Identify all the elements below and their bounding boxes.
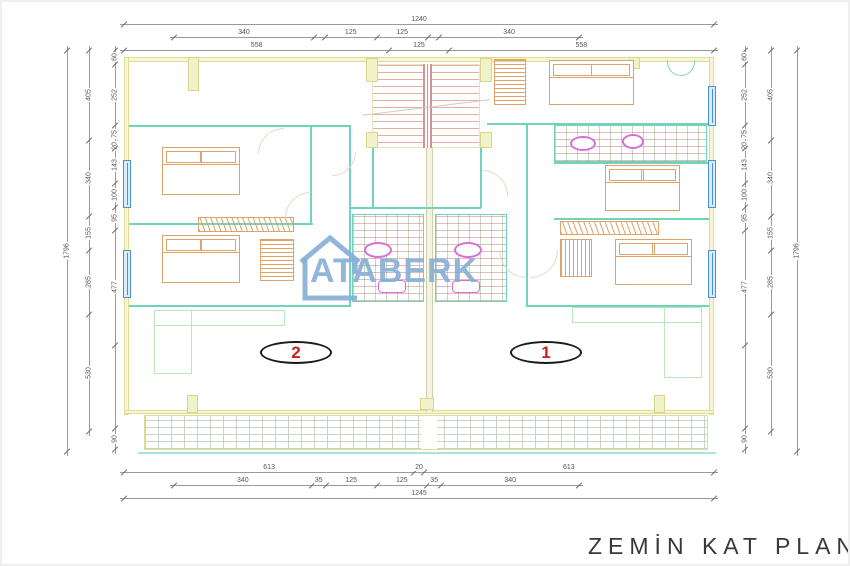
dimension-label: 75 bbox=[112, 129, 119, 139]
dimension-label: 340 bbox=[768, 171, 775, 185]
terrace-walkway bbox=[421, 416, 437, 449]
wall-pier bbox=[187, 395, 198, 413]
dimension-label: 75 bbox=[742, 129, 749, 139]
dimension-segment: 340 bbox=[174, 27, 314, 41]
pillow bbox=[166, 151, 202, 163]
dimension-segment: 285 bbox=[82, 250, 96, 313]
dimension-segment: 252 bbox=[108, 64, 122, 125]
dimension-label: 100 bbox=[112, 188, 119, 202]
dimension-label: 477 bbox=[742, 280, 749, 294]
dimension-tick bbox=[86, 47, 92, 53]
dimension-chain-top-inner: 340125125340 bbox=[174, 27, 579, 41]
entrance-step bbox=[420, 398, 434, 410]
dimension-label: 95 bbox=[112, 213, 119, 223]
dimension-chain-top-total: 1240 bbox=[124, 14, 714, 28]
dimension-chain-bottom-inner: 3403512512535340 bbox=[174, 475, 579, 489]
dimension-segment: 143 bbox=[108, 148, 122, 183]
watermark: ATABERK bbox=[297, 232, 487, 304]
bed-frame-line bbox=[550, 77, 633, 78]
terrace-edge-line bbox=[138, 452, 716, 454]
dimension-tick bbox=[121, 469, 127, 475]
dimension-label: 252 bbox=[112, 88, 119, 102]
wardrobe bbox=[560, 239, 592, 277]
dimension-segment: 1245 bbox=[124, 488, 714, 502]
pillow bbox=[641, 169, 676, 181]
dimension-label: 340 bbox=[236, 477, 250, 484]
unit-1-number: 1 bbox=[541, 343, 550, 363]
wall bbox=[351, 207, 481, 209]
dimension-tick bbox=[768, 47, 774, 53]
dimension-label: 340 bbox=[237, 29, 251, 36]
pillow bbox=[200, 239, 236, 251]
outer-wall-left bbox=[124, 57, 129, 415]
dimension-segment: 155 bbox=[764, 216, 778, 251]
dimension-segment: 530 bbox=[764, 314, 778, 432]
dimension-chain-right-total: 1796 bbox=[790, 50, 804, 452]
dimension-segment: 95 bbox=[108, 207, 122, 230]
dimension-segment: 613 bbox=[424, 462, 714, 476]
dimension-segment: 340 bbox=[764, 140, 778, 216]
column bbox=[366, 58, 378, 82]
dimension-segment: 125 bbox=[325, 27, 376, 41]
dimension-segment bbox=[108, 345, 122, 428]
dimension-segment: 155 bbox=[82, 216, 96, 251]
unit-2-number: 2 bbox=[291, 343, 300, 363]
toilet bbox=[570, 136, 596, 151]
pillow bbox=[591, 64, 630, 76]
wall bbox=[526, 123, 528, 307]
dimension-segment: 340 bbox=[441, 475, 579, 489]
wall bbox=[554, 162, 709, 164]
bed bbox=[162, 235, 240, 283]
dimension-label: 155 bbox=[86, 226, 93, 240]
dimension-segment: 405 bbox=[82, 50, 96, 140]
door-arc bbox=[530, 250, 558, 278]
dimension-segment: 477 bbox=[108, 230, 122, 345]
dimension-segment: 143 bbox=[738, 148, 752, 183]
dimension-label: 143 bbox=[112, 159, 119, 173]
dimension-segment: 1240 bbox=[124, 14, 714, 28]
dimension-label: 1245 bbox=[410, 490, 428, 497]
wall bbox=[129, 125, 351, 127]
dimension-segment: 125 bbox=[389, 40, 448, 54]
pillow bbox=[166, 239, 202, 251]
dimension-label: 35 bbox=[314, 477, 324, 484]
dimension-segment: 340 bbox=[174, 475, 312, 489]
dimension-segment: 340 bbox=[82, 140, 96, 216]
pillow bbox=[652, 243, 688, 255]
door-arc bbox=[258, 128, 284, 154]
dimension-label: 95 bbox=[742, 213, 749, 223]
basin-niche bbox=[667, 60, 695, 76]
window bbox=[708, 86, 716, 126]
dimension-chain-left-total: 1796 bbox=[60, 50, 74, 452]
dimension-chain-top-wall: 558125558 bbox=[124, 40, 714, 54]
dimension-tick bbox=[121, 495, 127, 501]
dimension-segment: 530 bbox=[82, 314, 96, 432]
dimension-segment: 1796 bbox=[790, 50, 804, 452]
dimension-segment: 100 bbox=[738, 183, 752, 207]
dimension-chain-left-inner: 6025275201431009547790 bbox=[108, 50, 122, 450]
dimension-segment: 477 bbox=[738, 230, 752, 345]
dimension-segment: 90 bbox=[738, 428, 752, 450]
bed-frame-line bbox=[163, 164, 239, 165]
dimension-label: 90 bbox=[742, 434, 749, 444]
dimension-label: 125 bbox=[344, 477, 358, 484]
window bbox=[708, 250, 716, 298]
living-room-edge bbox=[664, 307, 702, 378]
dimension-label: 155 bbox=[768, 226, 775, 240]
dimension-segment: 558 bbox=[449, 40, 714, 54]
dimension-tick bbox=[794, 47, 800, 53]
dimension-label: 558 bbox=[575, 42, 589, 49]
wardrobe bbox=[198, 217, 294, 232]
dimension-segment: 285 bbox=[764, 250, 778, 313]
dimension-chain-right-inner: 6025275201431009547790 bbox=[738, 50, 752, 450]
unit-1-label: 1 bbox=[510, 341, 582, 364]
bed bbox=[549, 60, 634, 105]
dimension-label: 405 bbox=[86, 88, 93, 102]
watermark-text: ATABERK bbox=[310, 252, 478, 291]
dimension-label: 143 bbox=[742, 159, 749, 173]
wall-pier bbox=[654, 395, 665, 413]
dimension-label: 1240 bbox=[410, 16, 428, 23]
dimension-label: 125 bbox=[395, 477, 409, 484]
dimension-label: 405 bbox=[768, 88, 775, 102]
dimension-chain-left-mid: 405340155285530 bbox=[82, 50, 96, 432]
dimension-segment: 125 bbox=[326, 475, 377, 489]
bed bbox=[615, 239, 692, 285]
dimension-label: 340 bbox=[86, 171, 93, 185]
outer-wall-bottom bbox=[124, 410, 714, 414]
dimension-label: 613 bbox=[562, 464, 576, 471]
dimension-label: 530 bbox=[86, 366, 93, 380]
dimension-label: 285 bbox=[768, 275, 775, 289]
dimension-tick bbox=[121, 21, 127, 27]
dimension-label: 90 bbox=[112, 434, 119, 444]
pillow bbox=[619, 243, 655, 255]
dimension-tick bbox=[64, 47, 70, 53]
wall-pier bbox=[188, 57, 199, 91]
dimension-segment: 340 bbox=[439, 27, 579, 41]
bed-frame-line bbox=[606, 182, 679, 183]
dimension-segment: 558 bbox=[124, 40, 389, 54]
dimension-chain-bottom-wall: 61320613 bbox=[124, 462, 714, 476]
floor-plan-page: 2 1 ATABERK 1240340125125340558125558613… bbox=[0, 0, 850, 566]
column bbox=[480, 58, 492, 82]
dimension-label: 20 bbox=[414, 464, 424, 471]
column bbox=[480, 132, 492, 148]
wardrobe bbox=[260, 239, 294, 281]
dimension-label: 35 bbox=[429, 477, 439, 484]
dimension-label: 530 bbox=[768, 366, 775, 380]
living-room-edge bbox=[154, 310, 192, 374]
column bbox=[366, 132, 378, 148]
dimension-segment: 95 bbox=[738, 207, 752, 230]
dimension-label: 558 bbox=[250, 42, 264, 49]
pillow bbox=[553, 64, 592, 76]
dimension-label: 613 bbox=[262, 464, 276, 471]
window bbox=[708, 160, 716, 208]
bed-frame-line bbox=[163, 252, 239, 253]
dimension-segment: 252 bbox=[738, 64, 752, 125]
dimension-label: 1796 bbox=[794, 242, 801, 260]
dimension-label: 477 bbox=[112, 280, 119, 294]
dimension-segment bbox=[738, 345, 752, 428]
plan-title: ZEMİN KAT PLANI bbox=[588, 533, 850, 560]
dimension-segment: 1796 bbox=[60, 50, 74, 452]
pillow bbox=[609, 169, 644, 181]
dimension-segment: 100 bbox=[108, 183, 122, 207]
dimension-label: 252 bbox=[742, 88, 749, 102]
wall bbox=[554, 218, 709, 220]
dimension-segment: 125 bbox=[377, 27, 428, 41]
window bbox=[123, 160, 131, 208]
wardrobe bbox=[560, 221, 659, 235]
dimension-label: 340 bbox=[502, 29, 516, 36]
wall bbox=[372, 148, 374, 208]
dimension-chain-bottom-total: 1245 bbox=[124, 488, 714, 502]
wall bbox=[129, 305, 351, 307]
bed bbox=[162, 147, 240, 195]
dimension-label: 125 bbox=[395, 29, 409, 36]
dimension-label: 100 bbox=[742, 188, 749, 202]
pillow bbox=[200, 151, 236, 163]
dimension-chain-right-mid: 405340155285530 bbox=[764, 50, 778, 432]
dimension-segment: 613 bbox=[124, 462, 414, 476]
bed bbox=[605, 165, 680, 211]
dimension-label: 285 bbox=[86, 275, 93, 289]
dimension-label: 1796 bbox=[64, 242, 71, 260]
window bbox=[123, 250, 131, 298]
dimension-label: 125 bbox=[344, 29, 358, 36]
dimension-segment: 125 bbox=[377, 475, 428, 489]
door-arc bbox=[482, 170, 508, 196]
door-arc bbox=[285, 192, 311, 218]
door-arc bbox=[332, 152, 356, 176]
dimension-label: 125 bbox=[412, 42, 426, 49]
unit-2-label: 2 bbox=[260, 341, 332, 364]
dimension-segment: 90 bbox=[108, 428, 122, 450]
bed-frame-line bbox=[616, 256, 691, 257]
wardrobe bbox=[494, 59, 526, 105]
sink bbox=[622, 134, 644, 149]
dimension-label: 340 bbox=[503, 477, 517, 484]
dimension-segment: 405 bbox=[764, 50, 778, 140]
